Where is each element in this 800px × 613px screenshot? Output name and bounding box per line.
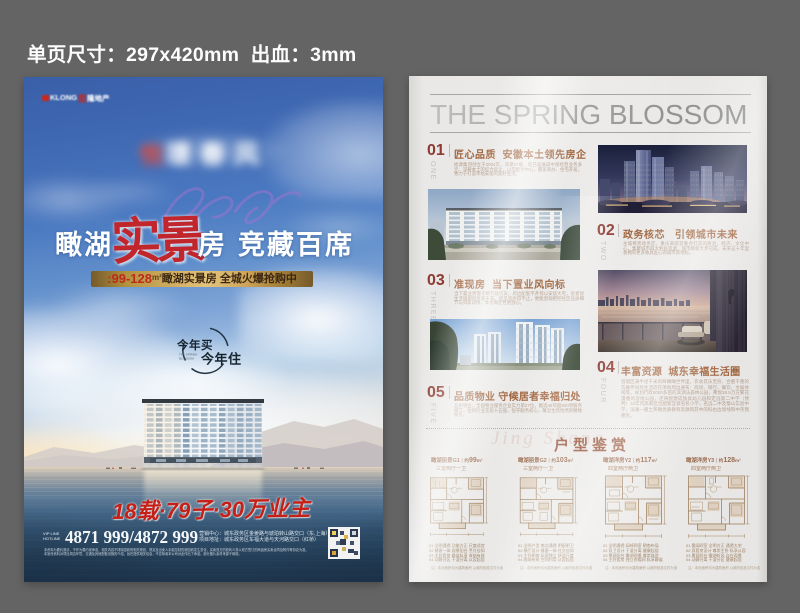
svg-text:BLOSSOM: BLOSSOM — [179, 357, 194, 361]
svg-text:今年住: 今年住 — [200, 352, 242, 367]
svg-text:今年买: 今年买 — [176, 338, 213, 352]
